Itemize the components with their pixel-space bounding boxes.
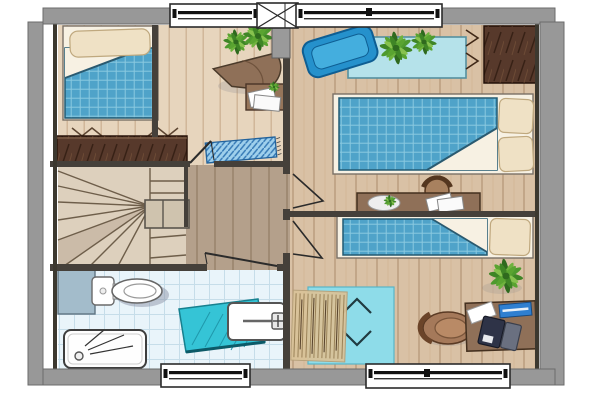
wall-bathroom-north-left bbox=[50, 264, 207, 271]
toilet-bowl bbox=[112, 279, 162, 303]
wardrobe bbox=[484, 26, 536, 83]
floor-plan-page bbox=[0, 0, 600, 400]
window-top-left bbox=[170, 4, 260, 27]
wall-center-stub bbox=[283, 209, 290, 220]
cistern-cabinet bbox=[58, 269, 95, 314]
desk-with-laptop bbox=[465, 300, 537, 354]
exterior-wall-left bbox=[28, 22, 43, 385]
stair-newel-handrail bbox=[145, 200, 189, 228]
double-bed bbox=[333, 94, 534, 174]
shower-tray-edge bbox=[64, 330, 146, 368]
landing-floor bbox=[186, 165, 290, 270]
single-bed-3 bbox=[337, 216, 533, 258]
chimney-flue-box bbox=[257, 3, 298, 28]
washbasin bbox=[228, 303, 285, 340]
wardrobe-grain bbox=[484, 26, 536, 83]
wall-bedroom2-bedroom3 bbox=[290, 211, 535, 217]
paper bbox=[437, 196, 464, 212]
shower-tray bbox=[64, 330, 146, 368]
bed1-pillow bbox=[70, 29, 151, 58]
wall-bedroom1-study bbox=[152, 25, 158, 137]
shower-drain bbox=[75, 352, 83, 360]
bed3-pillow bbox=[489, 218, 530, 255]
exterior-wall-bottom-right bbox=[508, 369, 555, 385]
flush-button bbox=[100, 288, 106, 294]
wall-bathroom-north-right bbox=[277, 264, 290, 271]
paper bbox=[253, 95, 280, 112]
fringed-throw bbox=[291, 290, 347, 362]
exterior-wall-right bbox=[540, 22, 564, 385]
single-bed-1 bbox=[63, 26, 158, 120]
bed2-pillow bbox=[498, 136, 534, 172]
dresser-grain bbox=[57, 136, 187, 163]
stair-balustrade bbox=[184, 165, 188, 227]
chest-of-drawers bbox=[57, 136, 187, 163]
plate bbox=[368, 196, 400, 211]
exterior-wall-bottom-left bbox=[43, 369, 163, 385]
wall-landing-north-right bbox=[214, 161, 290, 167]
floor-plan-canvas bbox=[0, 0, 600, 400]
window-bathroom bbox=[161, 364, 250, 387]
wall-landing-north-left bbox=[50, 161, 190, 167]
side-table bbox=[246, 81, 286, 111]
exterior-wall-bottom-mid bbox=[248, 369, 368, 385]
chimney-breast bbox=[272, 24, 290, 58]
window-top-right bbox=[296, 4, 442, 27]
bed2-pillow bbox=[498, 98, 534, 134]
desk-chair-seat bbox=[435, 318, 467, 338]
window-bottom-right bbox=[366, 364, 510, 388]
